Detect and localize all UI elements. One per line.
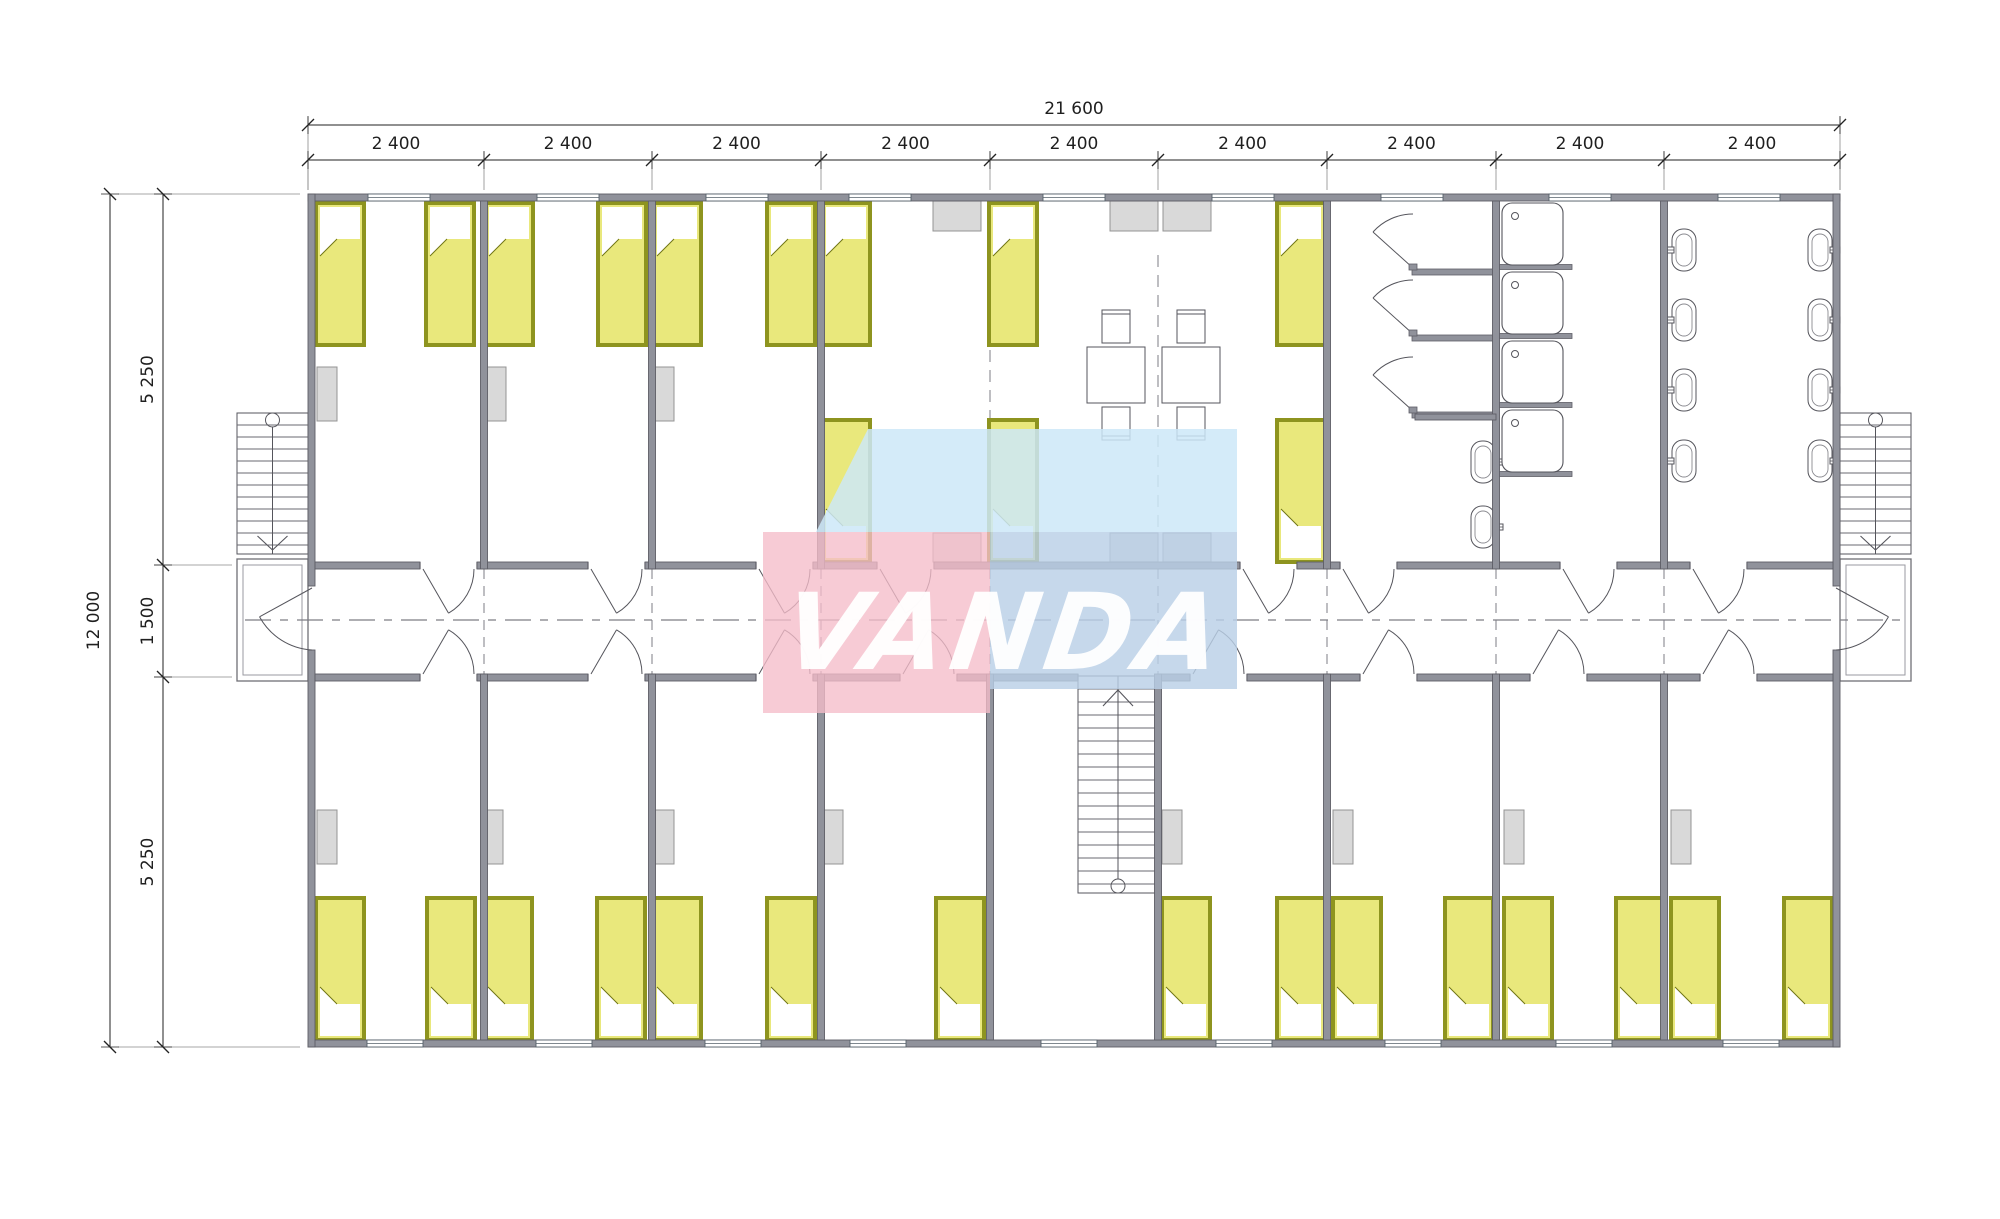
- wardrobe: [1671, 810, 1691, 864]
- dimension-label-segment: 1 500: [138, 597, 158, 646]
- door-leaf: [1343, 569, 1369, 613]
- dimension-label-total-height: 12 000: [84, 591, 104, 650]
- shower-tray: [1502, 272, 1563, 334]
- room-wall: [818, 674, 825, 1040]
- wardrobe: [654, 367, 674, 421]
- bed-pillow: [771, 1004, 811, 1036]
- bed-pillow: [1675, 1004, 1715, 1036]
- shower-tray: [1502, 203, 1563, 265]
- sanitary-fixtures: [1373, 203, 1840, 548]
- corridor-wall-bottom: [1247, 674, 1360, 681]
- bed-pillow: [657, 207, 697, 239]
- wardrobe: [317, 810, 337, 864]
- door-leaf: [1693, 569, 1719, 613]
- door-leaf: [1533, 630, 1559, 674]
- dimension-label-module: 2 400: [1387, 134, 1436, 154]
- dimension-label-module: 2 400: [372, 134, 421, 154]
- bed-pillow: [602, 207, 642, 239]
- floor-plan-page: 21 6002 4002 4002 4002 4002 4002 4002 40…: [0, 0, 2000, 1219]
- door-leaf: [423, 569, 449, 613]
- door-post: [1409, 330, 1417, 336]
- door-swing: [1589, 569, 1615, 613]
- central-stair: [1078, 676, 1158, 893]
- bed-pillow: [1788, 1004, 1828, 1036]
- wardrobe: [654, 810, 674, 864]
- door-swing: [1369, 569, 1395, 613]
- room-wall: [1493, 674, 1500, 1040]
- door-leaf: [1563, 569, 1589, 613]
- room-wall: [649, 201, 656, 569]
- door-leaf: [1243, 569, 1269, 613]
- wardrobe: [1162, 810, 1182, 864]
- wardrobe: [486, 367, 506, 421]
- room-wall: [1155, 674, 1162, 1040]
- chair: [1177, 310, 1205, 343]
- door-swing: [449, 569, 475, 613]
- dining-table: [1162, 347, 1220, 403]
- door-swing: [1729, 630, 1755, 674]
- bed-pillow: [1337, 1004, 1377, 1036]
- vent-unit: [933, 201, 981, 231]
- bed-pillow: [430, 207, 470, 239]
- bed-pillow: [488, 1004, 528, 1036]
- corridor-wall-top: [477, 562, 588, 569]
- bed-pillow: [1281, 207, 1321, 239]
- room-wall: [1324, 201, 1331, 569]
- dimension-label-segment: 5 250: [138, 838, 158, 887]
- shower-door-swing: [1373, 280, 1413, 298]
- room-wall: [481, 201, 488, 569]
- dimension-label-module: 2 400: [544, 134, 593, 154]
- corridor-wall-bottom: [1587, 674, 1700, 681]
- room-wall: [1661, 674, 1668, 1040]
- vent-unit: [1163, 201, 1211, 231]
- door-post: [1409, 264, 1417, 270]
- exterior-wall-left: [308, 650, 315, 1047]
- bed-pillow: [1281, 1004, 1321, 1036]
- corridor-wall-bottom: [477, 674, 588, 681]
- bed-pillow: [601, 1004, 641, 1036]
- bed-pillow: [489, 207, 529, 239]
- dimension-label-module: 2 400: [1050, 134, 1099, 154]
- door-swing: [1389, 630, 1415, 674]
- bed-pillow: [431, 1004, 471, 1036]
- wardrobe: [823, 810, 843, 864]
- room-wall: [1493, 201, 1500, 569]
- door-leaf: [591, 630, 617, 674]
- door-post: [1409, 407, 1417, 413]
- dimension-label-total-width: 21 600: [1044, 99, 1103, 119]
- corridor-wall-bottom: [1757, 674, 1833, 681]
- exterior-wall-right: [1833, 194, 1840, 586]
- door-leaf: [423, 630, 449, 674]
- room-wall: [481, 674, 488, 1040]
- wardrobe: [1504, 810, 1524, 864]
- dining-table: [1087, 347, 1145, 403]
- shower-cubicle-wall: [1415, 414, 1496, 420]
- dimension-label-module: 2 400: [1556, 134, 1605, 154]
- shower-door-swing: [1373, 214, 1413, 232]
- corridor-wall-top: [1397, 562, 1560, 569]
- room-wall: [1661, 201, 1668, 569]
- corridor-wall-bottom: [1417, 674, 1530, 681]
- bed-pillow: [1508, 1004, 1548, 1036]
- corridor-wall-top: [1297, 562, 1340, 569]
- bed-pillow: [771, 207, 811, 239]
- dimension-label-segment: 5 250: [138, 355, 158, 404]
- dimension-label-module: 2 400: [712, 134, 761, 154]
- shower-tray: [1502, 341, 1563, 403]
- door-swing: [1559, 630, 1585, 674]
- watermark-top-band: [816, 429, 1237, 532]
- bed-pillow: [320, 207, 360, 239]
- room-wall: [1324, 674, 1331, 1040]
- door-leaf: [1363, 630, 1389, 674]
- chair: [1102, 310, 1130, 343]
- door-leaf: [591, 569, 617, 613]
- door-swing: [1269, 569, 1295, 613]
- room-wall: [818, 201, 825, 569]
- bed-pillow: [1449, 1004, 1489, 1036]
- corridor-wall-top: [315, 562, 420, 569]
- shower-partition-wall: [1412, 335, 1496, 341]
- wardrobe: [317, 367, 337, 421]
- floor-plan-drawing: 21 6002 4002 4002 4002 4002 4002 4002 40…: [0, 0, 2000, 1219]
- door-swing: [617, 569, 643, 613]
- bed-pillow: [1620, 1004, 1660, 1036]
- shower-partition-wall: [1412, 269, 1496, 275]
- bed-pillow: [826, 207, 866, 239]
- shower-tray: [1502, 410, 1563, 472]
- door-swing: [617, 630, 643, 674]
- room-wall: [649, 674, 656, 1040]
- bed-pillow: [940, 1004, 980, 1036]
- corridor-wall-bottom: [645, 674, 756, 681]
- shower-door-swing: [1373, 357, 1413, 375]
- bed-pillow: [1166, 1004, 1206, 1036]
- door-swing: [1719, 569, 1745, 613]
- dimension-label-module: 2 400: [1728, 134, 1777, 154]
- door-leaf: [1703, 630, 1729, 674]
- bed-pillow: [657, 1004, 697, 1036]
- bed-pillow: [1281, 526, 1321, 558]
- corridor-wall-bottom: [315, 674, 420, 681]
- dimension-label-module: 2 400: [1218, 134, 1267, 154]
- shower-door: [1373, 375, 1413, 411]
- dimension-label-module: 2 400: [881, 134, 930, 154]
- shower-door: [1373, 298, 1413, 334]
- wardrobe: [1333, 810, 1353, 864]
- corridor-wall-top: [1747, 562, 1833, 569]
- watermark-logo-text: VANDA: [776, 571, 1234, 694]
- exterior-wall-right: [1833, 650, 1840, 1047]
- bed-pillow: [320, 1004, 360, 1036]
- bed-pillow: [993, 207, 1033, 239]
- exterior-wall-left: [308, 194, 315, 586]
- vent-unit: [1110, 201, 1158, 231]
- corridor-wall-top: [645, 562, 756, 569]
- shower-door: [1373, 232, 1413, 268]
- corridor-wall-top: [1617, 562, 1690, 569]
- door-swing: [449, 630, 475, 674]
- room-wall: [987, 674, 994, 1040]
